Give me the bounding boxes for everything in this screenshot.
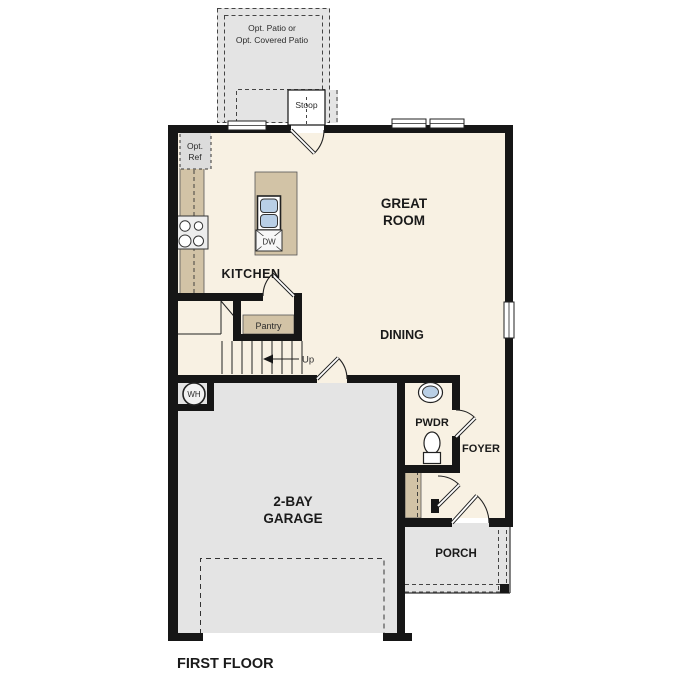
pantry-wall [294,293,302,341]
coat-closet [405,471,421,518]
garage-wall [383,633,412,641]
dishwasher: DW [256,230,282,251]
opt-ref-label-line1: Opt. [187,141,203,151]
kitchen-label: KITCHEN [221,267,280,281]
powder-room-label: PWDR [415,417,449,429]
closet-wall-stub [431,499,439,513]
garage-label-line2: GARAGE [263,511,322,526]
powder-room-wall [452,375,460,410]
cooktop [177,216,208,249]
water-heater-label: WH [187,390,201,399]
foyer-label: FOYER [462,443,500,455]
great-room-label-line1: GREAT [381,196,428,211]
up-label: Up [302,355,314,366]
porch-label: PORCH [435,548,477,560]
window [504,302,514,338]
window [392,119,426,128]
toilet [424,432,441,464]
opt-patio-label-line1: Opt. Patio or [248,23,296,33]
great-room-label-line2: ROOM [383,213,425,228]
pantry-label: Pantry [255,321,282,331]
exterior-wall [489,518,513,527]
pantry-wall [233,334,302,341]
dishwasher-label: DW [262,238,276,247]
porch-column [500,584,509,593]
garage-wall [168,375,317,383]
floor-plan-page: DW Up [0,0,687,687]
stoop-label: Stoop [295,100,317,110]
garage-label-line1: 2-BAY [273,494,312,509]
window [430,119,464,128]
opt-patio-label-line2: Opt. Covered Patio [236,35,309,45]
closet-shelf [405,471,421,518]
dining-label: DINING [380,328,424,342]
kitchen-wall [168,293,263,301]
window [228,121,266,130]
powder-sink [419,383,443,403]
garage-wall [397,375,405,641]
opt-ref-label-line2: Ref [188,152,202,162]
exterior-wall [397,518,452,527]
water-heater: WH [183,383,205,405]
kitchen-sink [258,196,281,230]
floor-title: FIRST FLOOR [177,656,274,672]
garage-wall [168,633,203,641]
floor-plan-drawing: DW Up [0,0,687,687]
powder-room-wall [397,465,460,473]
